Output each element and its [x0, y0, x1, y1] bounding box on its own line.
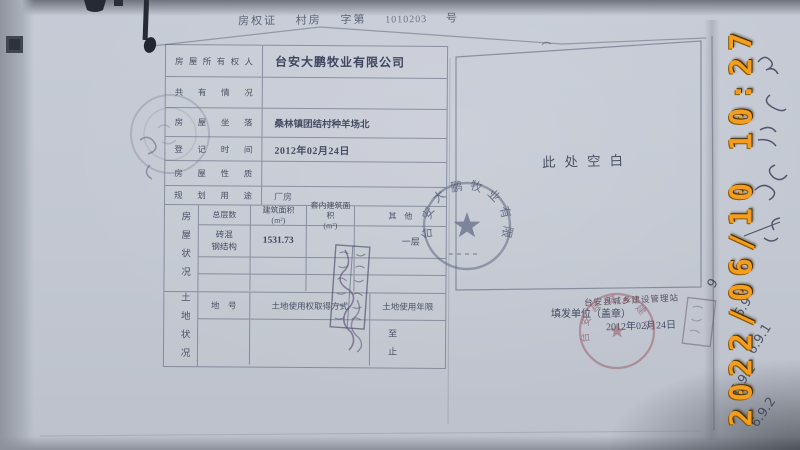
svg-text:台安县城乡建设管理站: 台安县城乡建设管理站	[577, 293, 655, 344]
issuer-seal-star-icon	[609, 323, 624, 338]
overlay-graphics: 台安大鹏牧业有限公司 台安县城乡建设管理站	[0, 0, 800, 450]
seal-star-icon	[454, 212, 481, 237]
handwriting-on-table	[340, 250, 361, 352]
faint-stamp-top-left	[131, 95, 209, 173]
svg-text:台安大鹏牧业有限公司: 台安大鹏牧业有限公司	[418, 178, 515, 246]
archive-box-stamp	[330, 245, 370, 329]
company-seal-stamp: 台安大鹏牧业有限公司	[418, 178, 515, 269]
handwriting-top-left	[140, 137, 156, 179]
binder-marks	[6, 0, 158, 54]
issuer-seal-text: 台安县城乡建设管理站	[577, 293, 655, 344]
blank-area-box	[456, 41, 701, 290]
camera-timestamp: 2022/06/10 10:27	[725, 26, 760, 427]
company-seal-text: 台安大鹏牧业有限公司	[418, 178, 515, 246]
small-box-stamp	[682, 297, 715, 346]
document-photo: 房权证 村房 字第 1010203 号 房屋所有权人 台安大鹏牧业有限公司 共有…	[0, 0, 800, 450]
issuer-seal-stamp: 台安县城乡建设管理站	[577, 293, 655, 368]
paper-creases	[40, 27, 714, 436]
